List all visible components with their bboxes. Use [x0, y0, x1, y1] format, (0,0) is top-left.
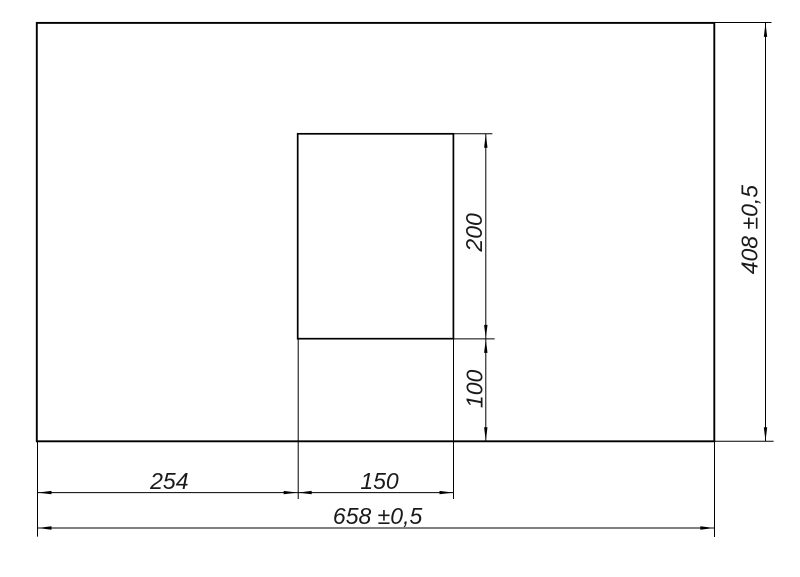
svg-text:254: 254 — [149, 468, 188, 494]
svg-text:200: 200 — [461, 213, 487, 253]
svg-text:408 ±0,5: 408 ±0,5 — [737, 185, 763, 275]
svg-text:150: 150 — [360, 468, 399, 494]
svg-text:100: 100 — [462, 370, 488, 409]
svg-text:658 ±0,5: 658 ±0,5 — [333, 503, 423, 529]
